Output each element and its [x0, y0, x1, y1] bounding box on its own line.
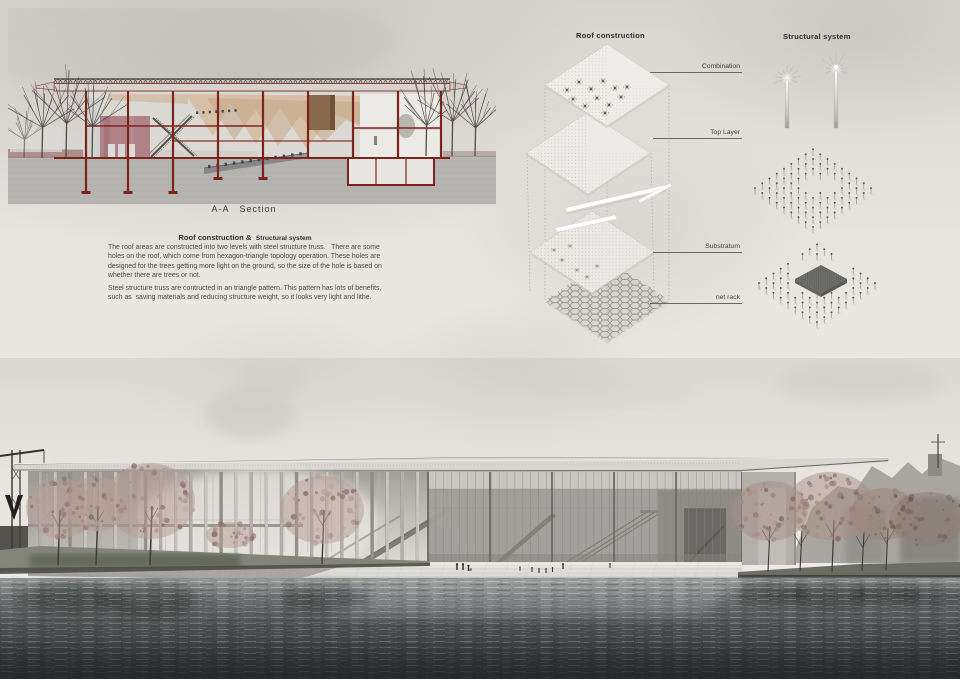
- branching-columns: [774, 52, 848, 128]
- text-heading-sub: Structural system: [256, 235, 312, 242]
- paragraph-roof: The roof areas are constructed into two …: [108, 243, 382, 281]
- presentation-board: A-A Section Roof construction & Structur…: [0, 0, 960, 679]
- text-heading-main: Roof construction &: [178, 233, 251, 242]
- water: [0, 578, 960, 679]
- basement-box: [348, 158, 434, 185]
- folded-plates: [555, 183, 672, 232]
- section-caption: A-A Section: [108, 204, 380, 214]
- layer-label-substratum: Substratum: [653, 243, 742, 253]
- building-rendering: [0, 358, 960, 679]
- layer-top-layer: [526, 112, 650, 197]
- paragraph-truss: Steel structure truss are contructed in …: [108, 284, 382, 303]
- section-drawing: [8, 8, 496, 204]
- roof-truss: [36, 79, 466, 91]
- background-building: [10, 126, 62, 152]
- structural-system-title: Structural system: [783, 32, 851, 41]
- column-array: [754, 148, 873, 233]
- column-array-with-core: [758, 243, 877, 328]
- layer-label-net-rack: net rack: [650, 294, 742, 304]
- structural-system-diagram: [745, 48, 960, 348]
- layer-combination: [545, 44, 669, 129]
- layer-label-top-layer: Top Layer: [653, 129, 742, 139]
- layer-label-combination: Combination: [650, 63, 742, 73]
